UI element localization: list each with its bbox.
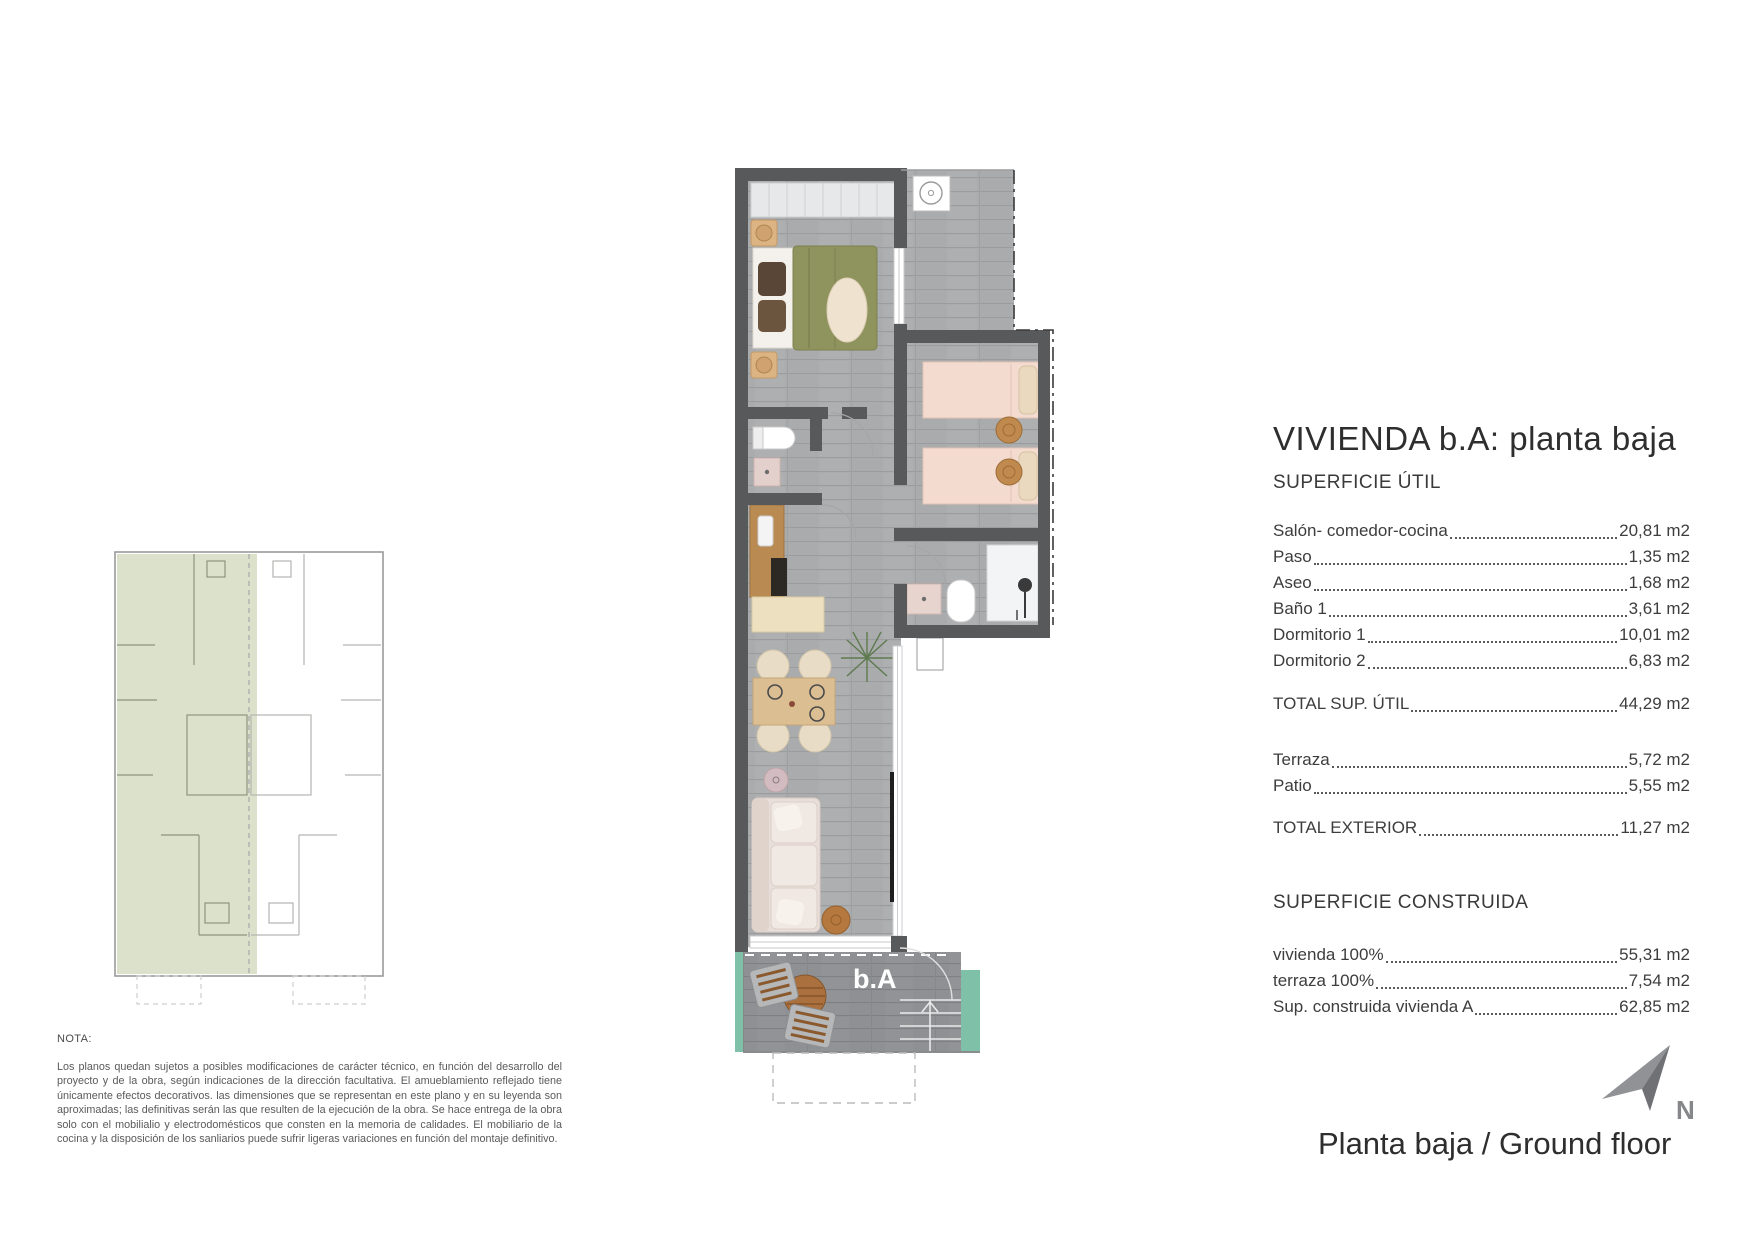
dotted-leader — [1368, 667, 1627, 669]
total-exterior-row: TOTAL EXTERIOR 11,27 m2 — [1273, 815, 1690, 841]
area-row: terraza 100% 7,54 m2 — [1273, 968, 1690, 994]
area-row: vivienda 100% 55,31 m2 — [1273, 942, 1690, 968]
area-row: Sup. construida vivienda A 62,85 m2 — [1273, 994, 1690, 1020]
teal-strip-right — [961, 970, 980, 1052]
area-row: Dormitorio 2 6,83 m2 — [1273, 648, 1690, 674]
area-row-value: 44,29 m2 — [1619, 691, 1690, 717]
area-row: Salón- comedor-cocina 20,81 m2 — [1273, 518, 1690, 544]
key-plan — [95, 475, 395, 1005]
area-row-value: 11,27 m2 — [1620, 815, 1690, 841]
washing-machine — [913, 176, 950, 211]
dotted-leader — [1475, 1013, 1617, 1015]
plan-sheet: b.A VIVIENDA b.A: planta baja SUPERFICIE… — [0, 0, 1753, 1240]
area-row: Dormitorio 1 10,01 m2 — [1273, 622, 1690, 648]
area-row-value: 20,81 m2 — [1619, 518, 1690, 544]
area-row-label: Sup. construida vivienda A — [1273, 994, 1473, 1020]
area-row-value: 3,61 m2 — [1629, 596, 1690, 622]
area-row-value: 5,55 m2 — [1629, 773, 1690, 799]
area-row-label: Terraza — [1273, 747, 1330, 773]
area-row-label: Dormitorio 2 — [1273, 648, 1366, 674]
area-row-value: 10,01 m2 — [1619, 622, 1690, 648]
dotted-leader — [1411, 710, 1617, 712]
area-row-value: 7,54 m2 — [1629, 968, 1690, 994]
area-row-label: terraza 100% — [1273, 968, 1374, 994]
area-row-label: Aseo — [1273, 570, 1312, 596]
nota-body: Los planos quedan sujetos a posibles mod… — [57, 1060, 562, 1146]
tv — [890, 772, 894, 902]
shaft — [917, 638, 943, 670]
area-row: Baño 1 3,61 m2 — [1273, 596, 1690, 622]
dotted-leader — [1450, 537, 1617, 539]
unit-label: b.A — [853, 964, 897, 994]
area-row-label: Dormitorio 1 — [1273, 622, 1366, 648]
dotted-leader — [1368, 641, 1618, 643]
area-row-label: TOTAL SUP. ÚTIL — [1273, 691, 1409, 717]
area-row-value: 1,35 m2 — [1629, 544, 1690, 570]
area-row: Patio 5,55 m2 — [1273, 773, 1690, 799]
dotted-leader — [1386, 961, 1618, 963]
area-row-label: Baño 1 — [1273, 596, 1327, 622]
area-row-label: Paso — [1273, 544, 1312, 570]
area-row: Terraza 5,72 m2 — [1273, 747, 1690, 773]
area-row: Aseo 1,68 m2 — [1273, 570, 1690, 596]
north-label: N — [1676, 1095, 1695, 1125]
area-row: Paso 1,35 m2 — [1273, 544, 1690, 570]
north-arrow: N — [1598, 1043, 1708, 1128]
dotted-leader — [1314, 563, 1627, 565]
dotted-leader — [1376, 987, 1626, 989]
floor-title: Planta baja / Ground floor — [1318, 1126, 1671, 1162]
area-row-value: 6,83 m2 — [1629, 648, 1690, 674]
dotted-leader — [1314, 589, 1627, 591]
area-row-label: Salón- comedor-cocina — [1273, 518, 1448, 544]
page-title: VIVIENDA b.A: planta baja — [1273, 420, 1690, 458]
area-row-value: 1,68 m2 — [1629, 570, 1690, 596]
area-row-label: TOTAL EXTERIOR — [1273, 815, 1417, 841]
wardrobe-dorm1 — [751, 183, 899, 217]
area-row-value: 5,72 m2 — [1629, 747, 1690, 773]
total-util-row: TOTAL SUP. ÚTIL 44,29 m2 — [1273, 691, 1690, 717]
dotted-leader — [1329, 615, 1627, 617]
teal-strip-left — [735, 952, 743, 1052]
dotted-leader — [1314, 792, 1627, 794]
dotted-leader — [1332, 766, 1627, 768]
superficie-construida-heading: SUPERFICIE CONSTRUIDA — [1273, 892, 1690, 914]
floor-plan: b.A — [595, 80, 1075, 1130]
keyplan-footprints — [137, 976, 365, 1004]
superficie-util-heading: SUPERFICIE ÚTIL — [1273, 472, 1690, 494]
area-row-label: vivienda 100% — [1273, 942, 1384, 968]
superficie-util-rows: Salón- comedor-cocina 20,81 m2 Paso 1,35… — [1273, 518, 1690, 1020]
area-row-label: Patio — [1273, 773, 1312, 799]
terrace-projection-dashed — [773, 1053, 915, 1103]
area-row-value: 62,85 m2 — [1619, 994, 1690, 1020]
dotted-leader — [1419, 834, 1618, 836]
nota-heading: NOTA: — [57, 1033, 562, 1045]
area-schedule-panel: VIVIENDA b.A: planta baja SUPERFICIE ÚTI… — [1273, 420, 1690, 1020]
nota-block: NOTA: Los planos quedan sujetos a posibl… — [57, 1033, 562, 1146]
area-row-value: 55,31 m2 — [1619, 942, 1690, 968]
